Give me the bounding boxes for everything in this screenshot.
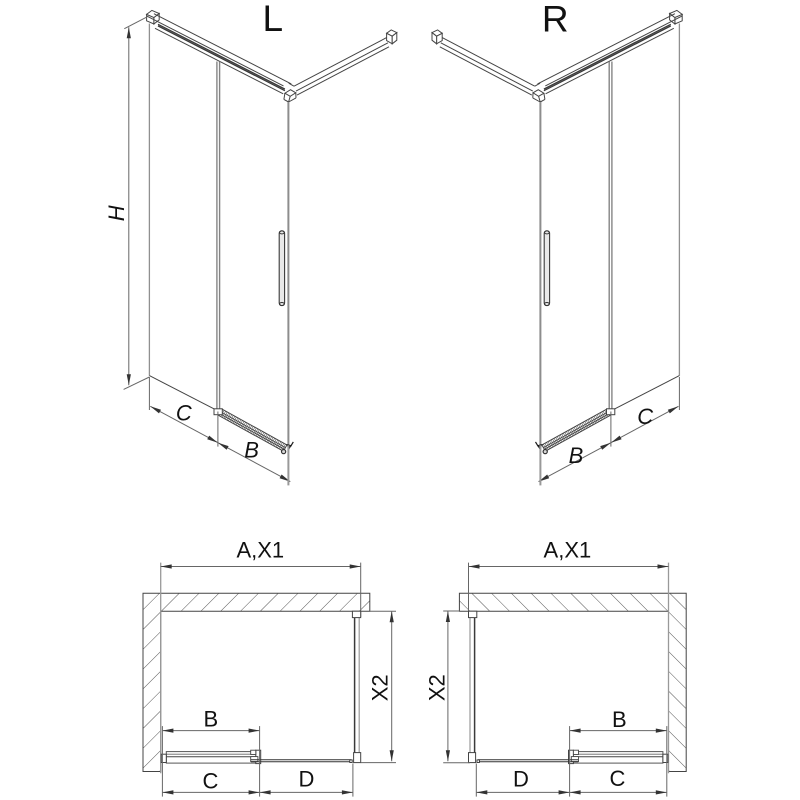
svg-text:B: B	[569, 443, 584, 468]
svg-text:L: L	[263, 0, 284, 39]
svg-text:X2: X2	[367, 674, 392, 701]
svg-text:C: C	[610, 766, 626, 791]
svg-text:C: C	[637, 404, 653, 429]
svg-text:C: C	[176, 400, 192, 425]
svg-text:B: B	[204, 707, 219, 732]
svg-text:H: H	[104, 205, 129, 221]
svg-text:C: C	[203, 769, 219, 794]
svg-text:A,X1: A,X1	[544, 537, 592, 562]
svg-text:X2: X2	[424, 674, 449, 701]
svg-text:D: D	[298, 767, 314, 792]
svg-text:A,X1: A,X1	[236, 537, 284, 562]
svg-text:D: D	[513, 767, 529, 792]
svg-text:R: R	[542, 0, 569, 39]
svg-text:B: B	[612, 707, 627, 732]
svg-text:B: B	[244, 437, 259, 462]
